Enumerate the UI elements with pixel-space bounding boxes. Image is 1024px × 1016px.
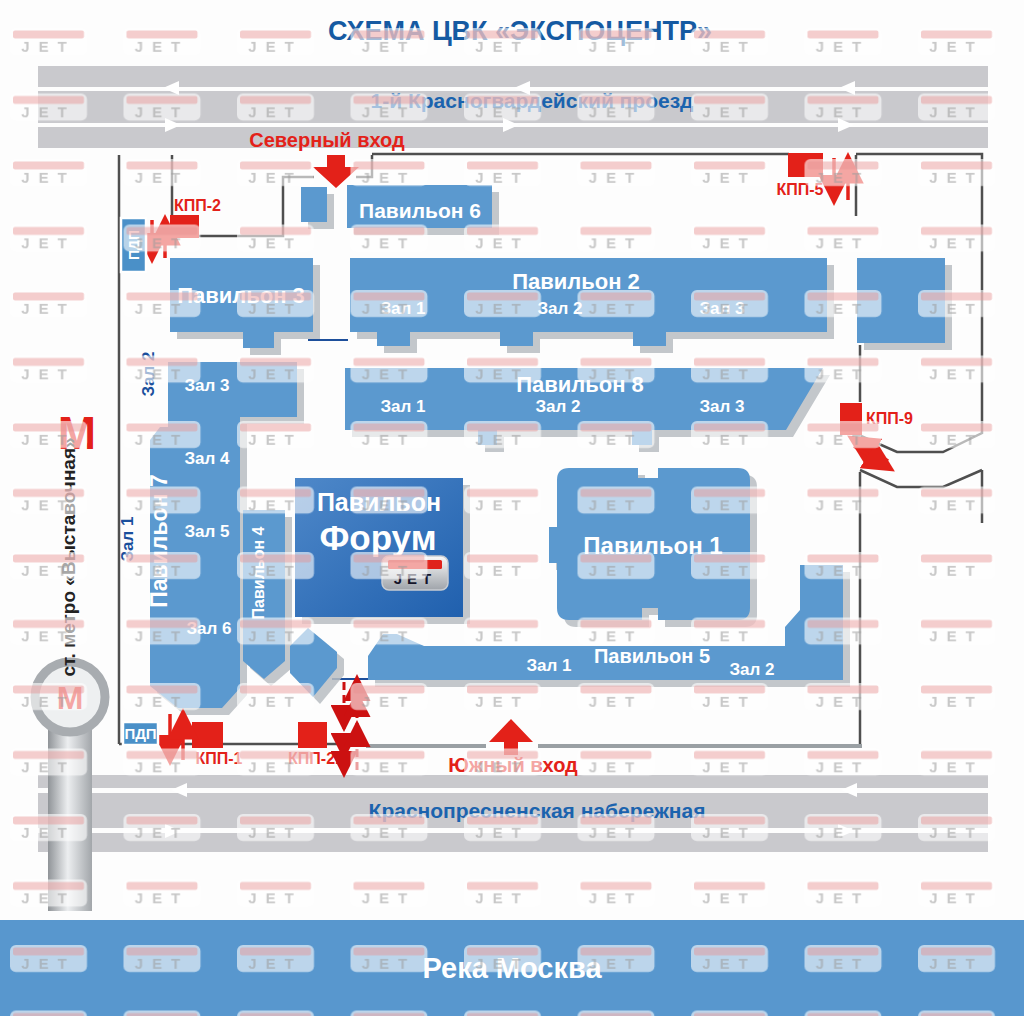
pdp-south-label: ПДП bbox=[124, 725, 156, 742]
south-entrance-label: Южный вход bbox=[448, 754, 578, 776]
kpp9-gate bbox=[840, 403, 862, 435]
south-pdp-arrows bbox=[170, 714, 183, 760]
north-entrance-arrow-icon bbox=[313, 155, 359, 188]
service-building bbox=[857, 258, 945, 343]
page-title: СХЕМА ЦВК «ЭКСПОЦЕНТР» bbox=[328, 16, 712, 46]
pavilion-5-hall-1-label: Зал 1 bbox=[526, 656, 571, 675]
pavilion-2-hall-3-label: Зал 3 bbox=[699, 299, 744, 318]
pdp-north: ПДП bbox=[121, 218, 146, 272]
checkpoint-kpp2: КПП-2 bbox=[152, 197, 221, 258]
pavilion-8-label: Павильон 8 bbox=[516, 372, 644, 397]
road-north-lane1 bbox=[38, 66, 988, 87]
pavilion-forum-label-line2: Форум bbox=[319, 518, 436, 557]
pavilion-2-hall-2-label: Зал 2 bbox=[537, 299, 582, 318]
pavilion-5-hall-2-label: Зал 2 bbox=[729, 660, 774, 679]
kpp1-label: КПП-1 bbox=[196, 750, 243, 767]
pavilion-7-hall-3-label: Зал 3 bbox=[184, 376, 229, 395]
west-hall-2-label: Зал 2 bbox=[139, 351, 158, 396]
jet-logo-red-bar bbox=[388, 560, 442, 569]
kpp2-label: КПП-2 bbox=[174, 197, 221, 214]
pavilion-8-hall-1-label: Зал 1 bbox=[380, 397, 425, 416]
expocentre-map: JET 1-й Красногвардейский проезд Красноп… bbox=[0, 0, 1024, 1016]
road-north: 1-й Красногвардейский проезд bbox=[38, 66, 988, 148]
river: Река Москва bbox=[0, 920, 1024, 1016]
river-label: Река Москва bbox=[422, 952, 602, 984]
kpp21-label: КПП-21 bbox=[288, 750, 344, 767]
south-entrance-arrow-icon bbox=[489, 719, 533, 755]
road-south-lane3 bbox=[38, 833, 988, 852]
pavilion-6-annex bbox=[301, 187, 327, 222]
pavilion-2-hall-1-label: Зал 1 bbox=[380, 299, 425, 318]
pavilion-3-label: Павильон 3 bbox=[177, 283, 305, 308]
checkpoint-kpp5: КПП-5 bbox=[777, 153, 849, 200]
road-south-label: Краснопресненская набережная bbox=[369, 799, 706, 822]
pavilion-7-hall-4-label: Зал 4 bbox=[184, 449, 230, 468]
pavilion-8-hall-3-label: Зал 3 bbox=[699, 397, 744, 416]
pavilion-7-hall-5-label: Зал 5 bbox=[184, 522, 229, 541]
metro-circle-symbol: М bbox=[57, 680, 84, 716]
road-south: Краснопресненская набережная bbox=[38, 775, 988, 852]
kpp5-gate bbox=[788, 153, 823, 177]
pavilion-forum-label-line1: Павильон bbox=[317, 488, 441, 516]
pavilion-5-label: Павильон 5 bbox=[594, 645, 710, 667]
pavilion-6-label: Павильон 6 bbox=[359, 199, 481, 222]
kpp9-label: КПП-9 bbox=[866, 410, 913, 427]
pavilion-1-label: Павильон 1 bbox=[583, 532, 722, 559]
west-hall-1-label: Зал 1 bbox=[118, 516, 137, 561]
metro-tunnel bbox=[48, 712, 92, 911]
service-route-arrows bbox=[344, 682, 357, 770]
north-entrance-label: Северный вход bbox=[249, 129, 405, 151]
kpp21-gate bbox=[298, 722, 327, 748]
jet-logo: JET bbox=[382, 556, 448, 590]
road-north-label: 1-й Красногвардейский проезд bbox=[371, 89, 694, 112]
pavilion-4-label: Павильон 4 bbox=[250, 526, 267, 619]
north-entrance: Северный вход bbox=[249, 129, 405, 188]
pavilion-7-label: Павильон 7 bbox=[146, 474, 172, 607]
kpp5-label: КПП-5 bbox=[777, 181, 824, 198]
kpp2-gate bbox=[170, 215, 199, 238]
pdp-north-label: ПДП bbox=[126, 230, 142, 260]
jet-logo-text: JET bbox=[394, 570, 437, 587]
metro-station-label: ст. метро «Выставочная» bbox=[58, 437, 79, 676]
checkpoint-kpp9: КПП-9 bbox=[840, 403, 913, 464]
pavilion-2-label: Павильон 2 bbox=[512, 269, 640, 294]
pavilion-8-hall-2-label: Зал 2 bbox=[535, 397, 580, 416]
pavilion-7-hall-6-label: Зал 6 bbox=[186, 619, 231, 638]
pdp-south: ПДП bbox=[123, 722, 158, 745]
kpp1-gate bbox=[192, 722, 223, 748]
road-north-lane3 bbox=[38, 127, 988, 148]
